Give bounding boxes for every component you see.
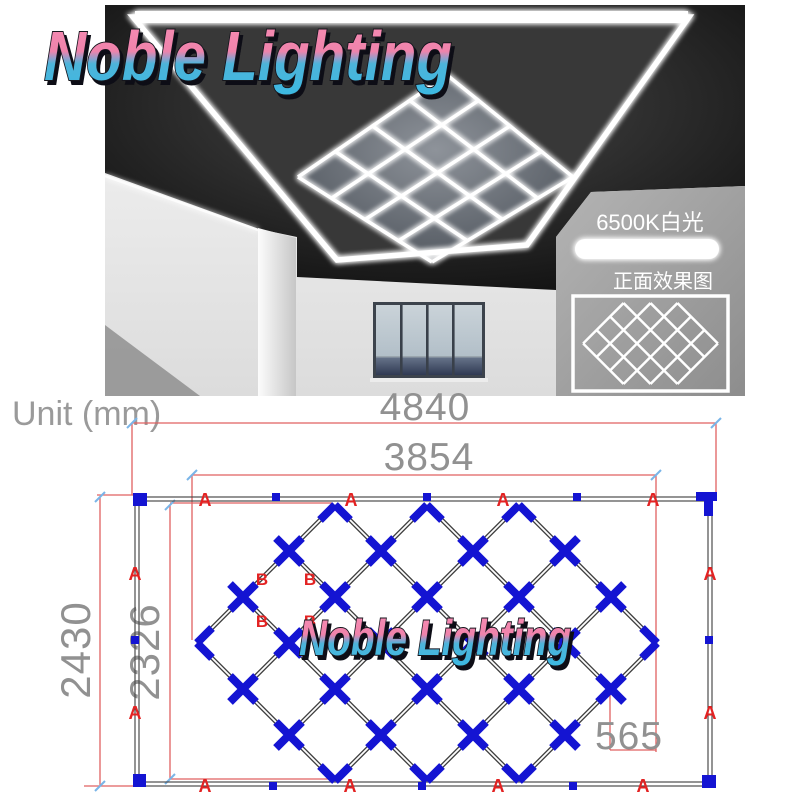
brand-logo: Noble Lighting — [44, 17, 452, 95]
svg-text:B: B — [304, 570, 316, 589]
window-horizon — [376, 356, 482, 358]
svg-text:A: A — [704, 564, 717, 584]
svg-text:A: A — [129, 564, 142, 584]
dim-diamond-half: 565 — [595, 715, 663, 758]
svg-text:A: A — [199, 490, 212, 510]
svg-text:B: B — [256, 570, 268, 589]
watermark-logo: Noble Lighting — [299, 610, 571, 666]
svg-text:A: A — [492, 776, 505, 796]
svg-text:B: B — [256, 612, 268, 631]
svg-text:A: A — [704, 703, 717, 723]
unit-label: Unit (mm) — [12, 395, 161, 433]
color-temp-badge: 6500K白光 — [596, 210, 704, 235]
svg-text:A: A — [637, 776, 650, 796]
window-sky — [376, 305, 482, 357]
svg-text:A: A — [199, 776, 212, 796]
dim-inner-height: 2326 — [121, 603, 168, 700]
svg-text:A: A — [497, 490, 510, 510]
wall-pillar — [258, 228, 296, 396]
svg-text:A: A — [129, 703, 142, 723]
svg-text:A: A — [344, 776, 357, 796]
image-canvas: 6500K白光 正面效果图 Noble Lighting Unit (mm) 4… — [0, 0, 800, 800]
dim-outer-height: 2430 — [52, 601, 99, 698]
window-sill — [370, 378, 488, 382]
dim-outer-width: 4840 — [380, 386, 471, 429]
window-lower-band — [376, 357, 482, 375]
svg-text:A: A — [345, 490, 358, 510]
light-bar-pill — [575, 239, 719, 259]
dimension-diagram: Unit (mm) 4840 3854 2430 2326 565 — [12, 386, 721, 796]
dim-inner-width: 3854 — [384, 436, 475, 479]
product-listing-image: 6500K白光 正面效果图 Noble Lighting Unit (mm) 4… — [0, 0, 800, 800]
front-view-label: 正面效果图 — [613, 270, 713, 293]
svg-text:A: A — [647, 490, 660, 510]
photo-render: 6500K白光 正面效果图 Noble Lighting — [44, 5, 745, 396]
window — [370, 302, 488, 382]
